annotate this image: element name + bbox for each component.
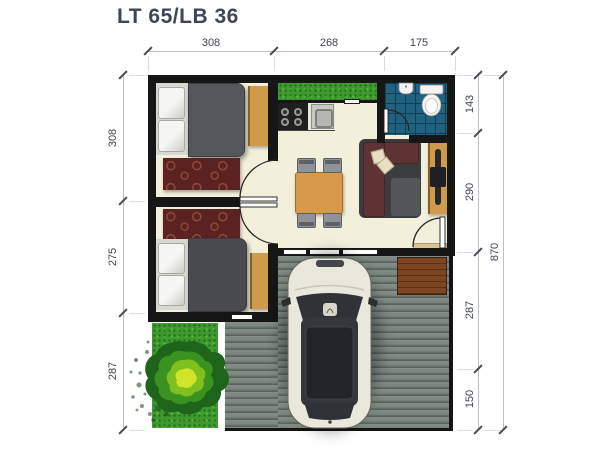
- chair-back: [325, 160, 340, 164]
- deck-edge: [449, 256, 453, 431]
- dim-tick: [450, 46, 459, 55]
- dim-line-left: [123, 75, 124, 430]
- dim-label-right-3: 287: [464, 301, 476, 319]
- wall-right: [447, 75, 455, 256]
- kitchen-sink: [311, 104, 334, 129]
- dim-label-left-3: 287: [107, 362, 119, 380]
- chair-back: [325, 222, 340, 226]
- stove-icon: [276, 103, 308, 130]
- sink-basin: [315, 109, 333, 128]
- dining-chair: [297, 158, 316, 173]
- carport-deck-front: [225, 322, 278, 430]
- bed-pillow: [158, 120, 185, 152]
- window-mullion: [306, 249, 310, 255]
- dim-extension: [457, 252, 473, 253]
- dim-label-top-2: 268: [320, 37, 338, 49]
- bedroom2-rug: [163, 209, 240, 239]
- bed-pillow: [158, 275, 185, 306]
- dim-extension: [129, 313, 145, 314]
- dim-extension: [274, 56, 275, 71]
- dim-label-right-2: 290: [464, 183, 476, 201]
- dining-chair: [297, 213, 316, 228]
- dim-tick: [118, 425, 127, 434]
- burner-icon: [294, 118, 302, 126]
- dim-line-top: [148, 51, 455, 52]
- dim-extension: [129, 75, 145, 76]
- bathroom-floor: [385, 83, 447, 135]
- dim-extension: [455, 56, 456, 71]
- dim-extension: [148, 56, 149, 71]
- dim-label-top-1: 308: [202, 37, 220, 49]
- garden-grass: [152, 323, 218, 428]
- dining-chair: [323, 213, 342, 228]
- bedroom2-window: [231, 314, 253, 320]
- terrace-mat: [397, 257, 447, 295]
- dim-extension: [484, 430, 501, 431]
- deck-edge: [225, 428, 453, 431]
- dim-label-right-4: 150: [464, 390, 476, 408]
- bedroom1-rug: [163, 158, 240, 190]
- dim-extension: [129, 201, 145, 202]
- floorplan-image: LT 65/LB 36 308 268 175 308 275 287 143 …: [0, 0, 600, 450]
- wardrobe: [250, 253, 270, 309]
- window-mullion: [339, 249, 343, 255]
- wall-top: [148, 75, 455, 83]
- dim-tick: [498, 425, 507, 434]
- kitchen-planter: [278, 83, 377, 100]
- dim-extension: [384, 56, 385, 71]
- dim-extension: [457, 133, 473, 134]
- plan-title: LT 65/LB 36: [117, 5, 239, 29]
- dim-tick: [473, 425, 482, 434]
- dim-line-overall: [503, 75, 504, 430]
- dim-extension: [457, 75, 473, 76]
- dining-chair: [323, 158, 342, 173]
- ottoman: [390, 177, 421, 217]
- wall-bedrooms: [148, 197, 240, 207]
- dim-label-right-1: 143: [464, 95, 476, 113]
- burner-icon: [281, 108, 289, 116]
- dim-extension: [129, 430, 145, 431]
- bed-pillow: [158, 87, 185, 119]
- bed-blanket: [188, 238, 247, 312]
- tv-cabinet: [428, 139, 449, 214]
- chair-back: [299, 160, 314, 164]
- wall-bathroom-left: [377, 83, 385, 143]
- living-window: [283, 249, 378, 255]
- dim-label-overall: 870: [489, 243, 501, 261]
- burner-icon: [281, 118, 289, 126]
- dining-table: [295, 172, 343, 214]
- service-window: [344, 99, 360, 104]
- wall-bathroom-bottom: [409, 135, 455, 143]
- burner-icon: [294, 108, 302, 116]
- wall-bedroom2-bottom: [148, 312, 278, 322]
- dim-label-left-2: 275: [107, 248, 119, 266]
- bed-pillow: [158, 243, 185, 274]
- dim-extension: [457, 430, 473, 431]
- wardrobe: [248, 86, 268, 146]
- wall-divider-upper: [268, 83, 278, 161]
- chair-back: [299, 222, 314, 226]
- dim-label-left-1: 308: [107, 129, 119, 147]
- bed-blanket: [188, 83, 245, 157]
- dim-extension: [484, 75, 501, 76]
- dim-label-top-3: 175: [410, 37, 428, 49]
- dim-extension: [457, 369, 473, 370]
